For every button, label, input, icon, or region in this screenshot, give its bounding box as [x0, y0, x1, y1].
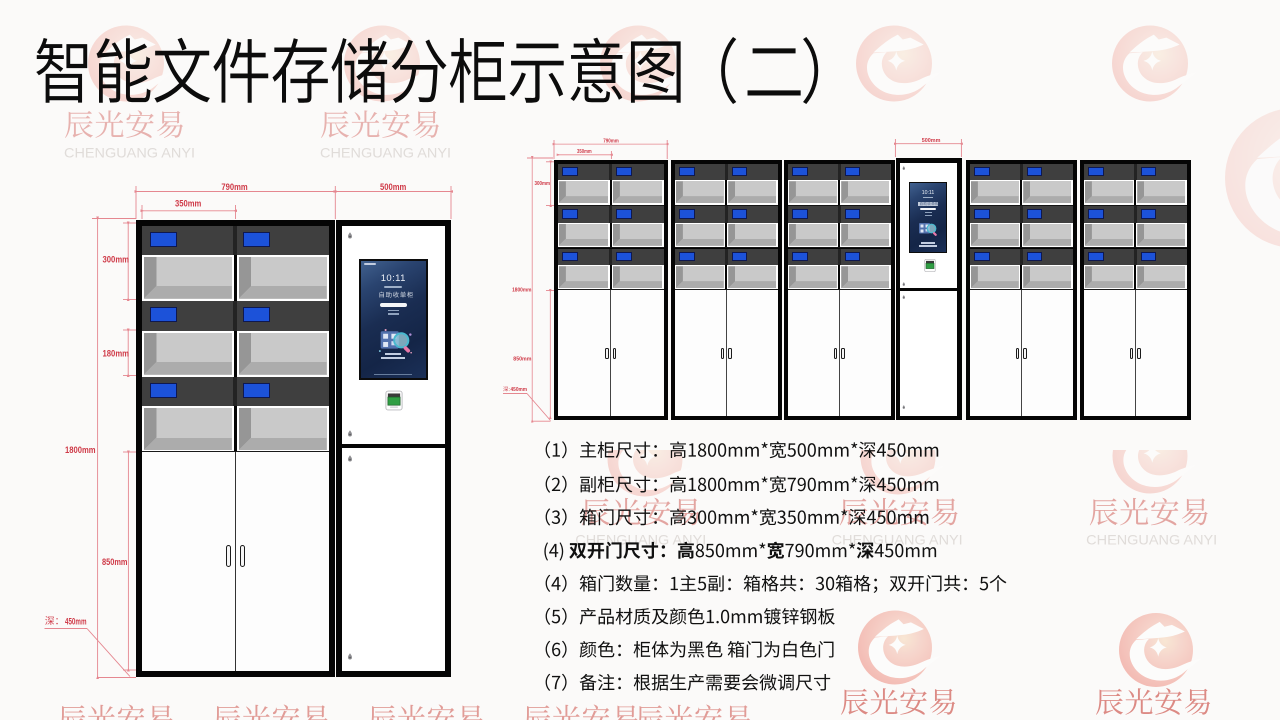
- svg-text:500mm: 500mm: [380, 182, 406, 192]
- svg-text:1800mm: 1800mm: [512, 288, 531, 294]
- svg-text:790mm: 790mm: [603, 139, 619, 145]
- svg-text:450mm: 450mm: [65, 616, 87, 626]
- svg-text:500mm: 500mm: [922, 138, 941, 144]
- svg-text:180mm: 180mm: [103, 348, 130, 358]
- svg-text:350mm: 350mm: [175, 198, 201, 208]
- svg-text:850mm: 850mm: [102, 557, 128, 567]
- svg-text:300mm: 300mm: [535, 181, 551, 187]
- svg-text:350mm: 350mm: [577, 149, 592, 155]
- svg-text:1800mm: 1800mm: [65, 445, 96, 455]
- svg-text:450mm: 450mm: [511, 387, 528, 393]
- svg-text:790mm: 790mm: [221, 182, 247, 192]
- svg-text:850mm: 850mm: [513, 357, 531, 363]
- svg-text:300mm: 300mm: [103, 254, 130, 264]
